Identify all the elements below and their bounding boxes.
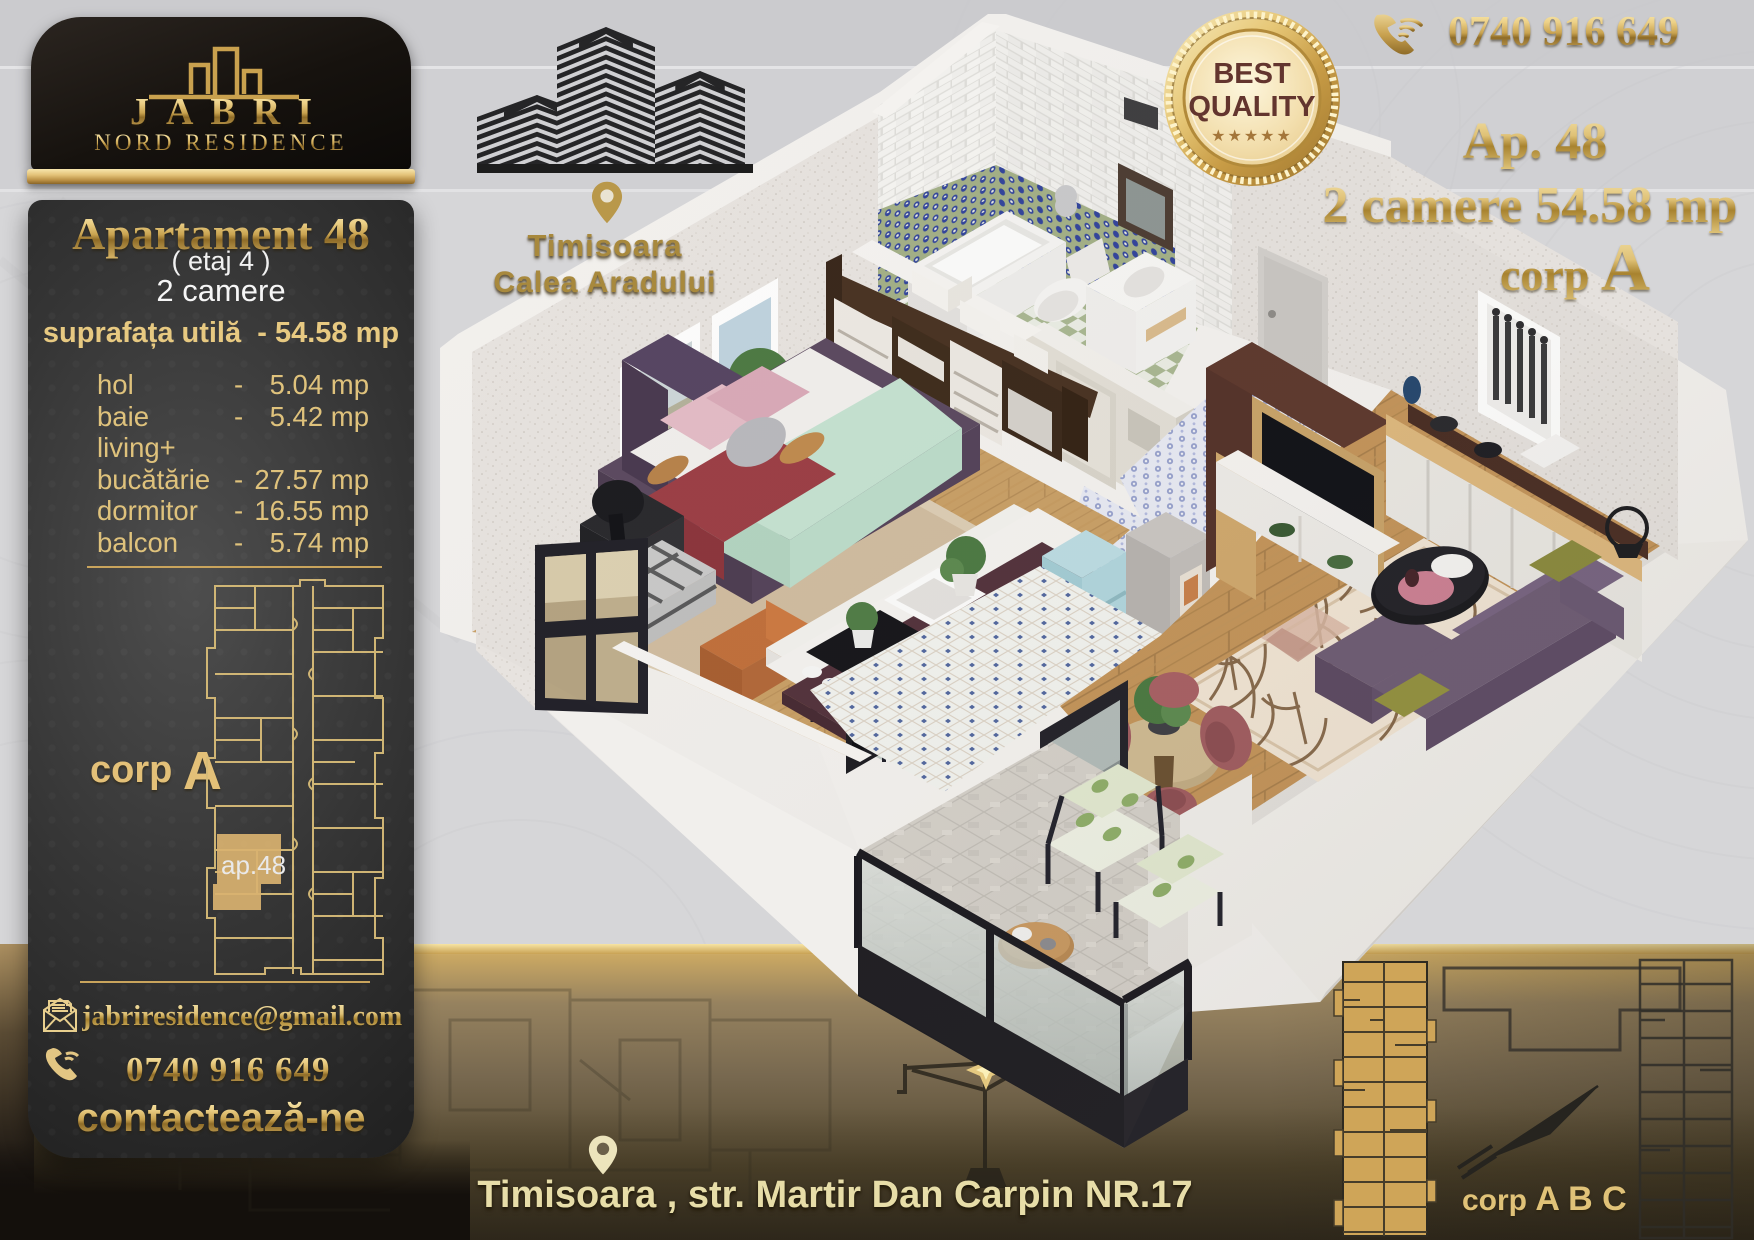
svg-text:★★★★★: ★★★★★ xyxy=(1211,128,1293,145)
svg-text:BEST: BEST xyxy=(1213,58,1291,90)
svg-text:ap.48: ap.48 xyxy=(221,850,286,880)
svg-text:QUALITY: QUALITY xyxy=(1188,91,1315,123)
